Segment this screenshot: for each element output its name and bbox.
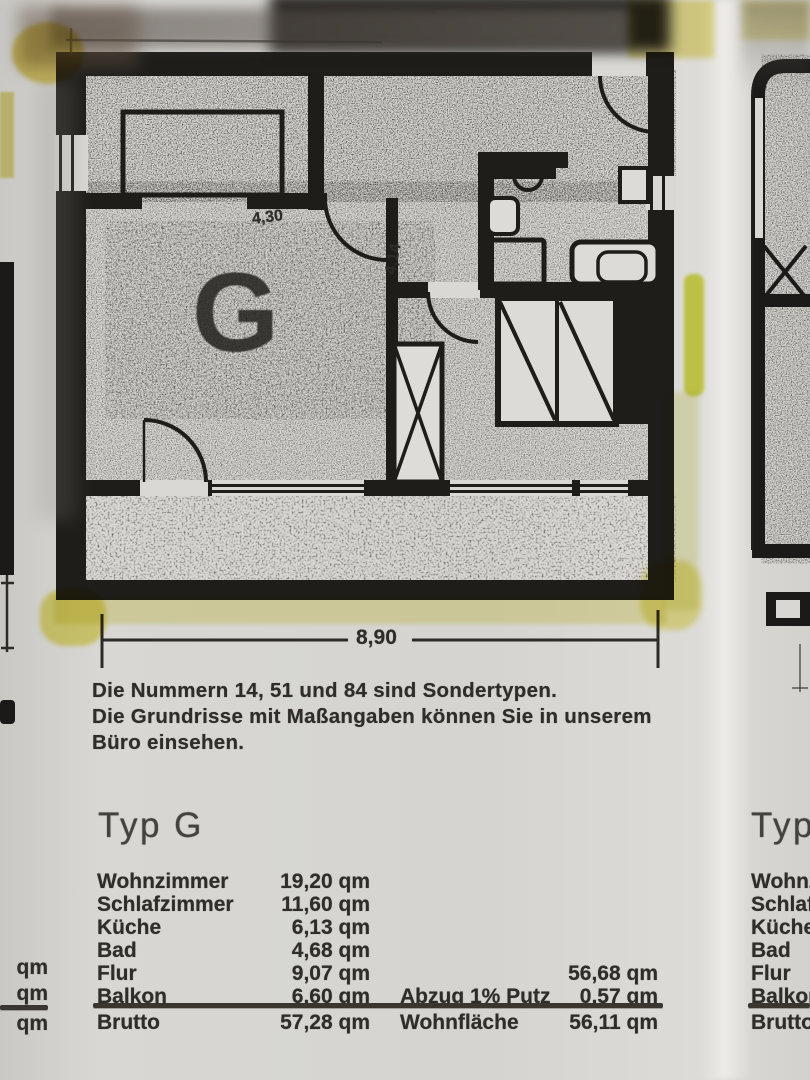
neighbour-room-label: Bad: [751, 939, 791, 963]
room-area: 19,20 qm: [210, 870, 370, 894]
toilet-icon: [488, 198, 518, 234]
room-area: 9,07 qm: [210, 962, 370, 986]
neighbour-area-unit: qm: [0, 956, 48, 980]
smear-artifact: [36, 80, 76, 520]
bath-window: [620, 168, 648, 202]
note-line: Die Nummern 14, 51 und 84 sind Sondertyp…: [92, 678, 652, 704]
highlight-mark: [640, 560, 702, 630]
neighbour-total-rule: [748, 1003, 810, 1008]
subtotal-area: 56,68 qm: [505, 962, 658, 986]
living-area-value: 56,11 qm: [505, 1011, 658, 1035]
room-label: Wohnzimmer: [97, 870, 228, 894]
neighbour-room-label: Schlafz: [751, 893, 810, 917]
room-area: 6,13 qm: [210, 916, 370, 940]
neighbour-area-unit: qm: [0, 1012, 48, 1036]
table-row: Küche 6,13 qm: [0, 916, 810, 940]
table-row: Bad 4,68 qm: [0, 939, 810, 963]
room-label: Küche: [97, 916, 161, 940]
table-row: Schlafzimmer 11,60 qm: [0, 893, 810, 917]
outer-wall-top: [56, 52, 674, 76]
highlight-mark: [742, 0, 810, 40]
highlight-mark: [0, 92, 14, 178]
living-area-label: Wohnfläche: [400, 1011, 519, 1035]
highlight-mark: [54, 596, 666, 624]
room-area: 4,68 qm: [210, 939, 370, 963]
neighbour-area-unit: qm: [0, 982, 48, 1006]
neighbour-room-label: Küche: [751, 916, 810, 940]
note-line: Die Grundrisse mit Maßangaben können Sie…: [92, 704, 652, 730]
total-area: 57,28 qm: [210, 1011, 370, 1035]
right-neighbour-plan: [752, 66, 810, 692]
note-paragraph: Die Nummern 14, 51 und 84 sind Sondertyp…: [92, 678, 652, 756]
wardrobe: [498, 298, 616, 424]
neighbour-left-rule: [0, 1005, 48, 1010]
table-total-rule: [93, 1003, 663, 1008]
table-row: Wohnzimmer 19,20 qm: [0, 870, 810, 894]
highlight-mark: [684, 274, 704, 396]
room-area: 11,60 qm: [210, 893, 370, 917]
highlight-mark: [628, 0, 714, 58]
room-label: Bad: [97, 939, 137, 963]
left-neighbour-plan: [0, 262, 15, 724]
room-width-annotation: 4,30: [251, 207, 284, 229]
page-title: Typ G: [98, 806, 204, 846]
neighbour-room-label: Flur: [751, 962, 791, 986]
highlight-mark: [40, 588, 106, 646]
neighbour-page-title: Typ: [751, 806, 810, 846]
total-label: Brutto: [97, 1011, 160, 1035]
neighbour-total-label: Brutto: [751, 1011, 810, 1035]
note-line: Büro einsehen.: [92, 730, 652, 756]
table-row: Flur 9,07 qm 56,68 qm: [0, 962, 810, 986]
room-type-letter: G: [192, 248, 279, 377]
total-width-dimension: 8,90: [356, 626, 397, 650]
room-label: Flur: [97, 962, 137, 986]
neighbour-room-label: Wohnz: [751, 870, 810, 894]
highlight-mark: [12, 22, 84, 84]
shaft-symbol: [394, 344, 442, 482]
photo-page: G 4,30 4,14 8,90 Die Nummern 14, 51 und …: [0, 0, 810, 1080]
table-row-total: Brutto 57,28 qm Wohnfläche 56,11 qm: [0, 1011, 810, 1035]
